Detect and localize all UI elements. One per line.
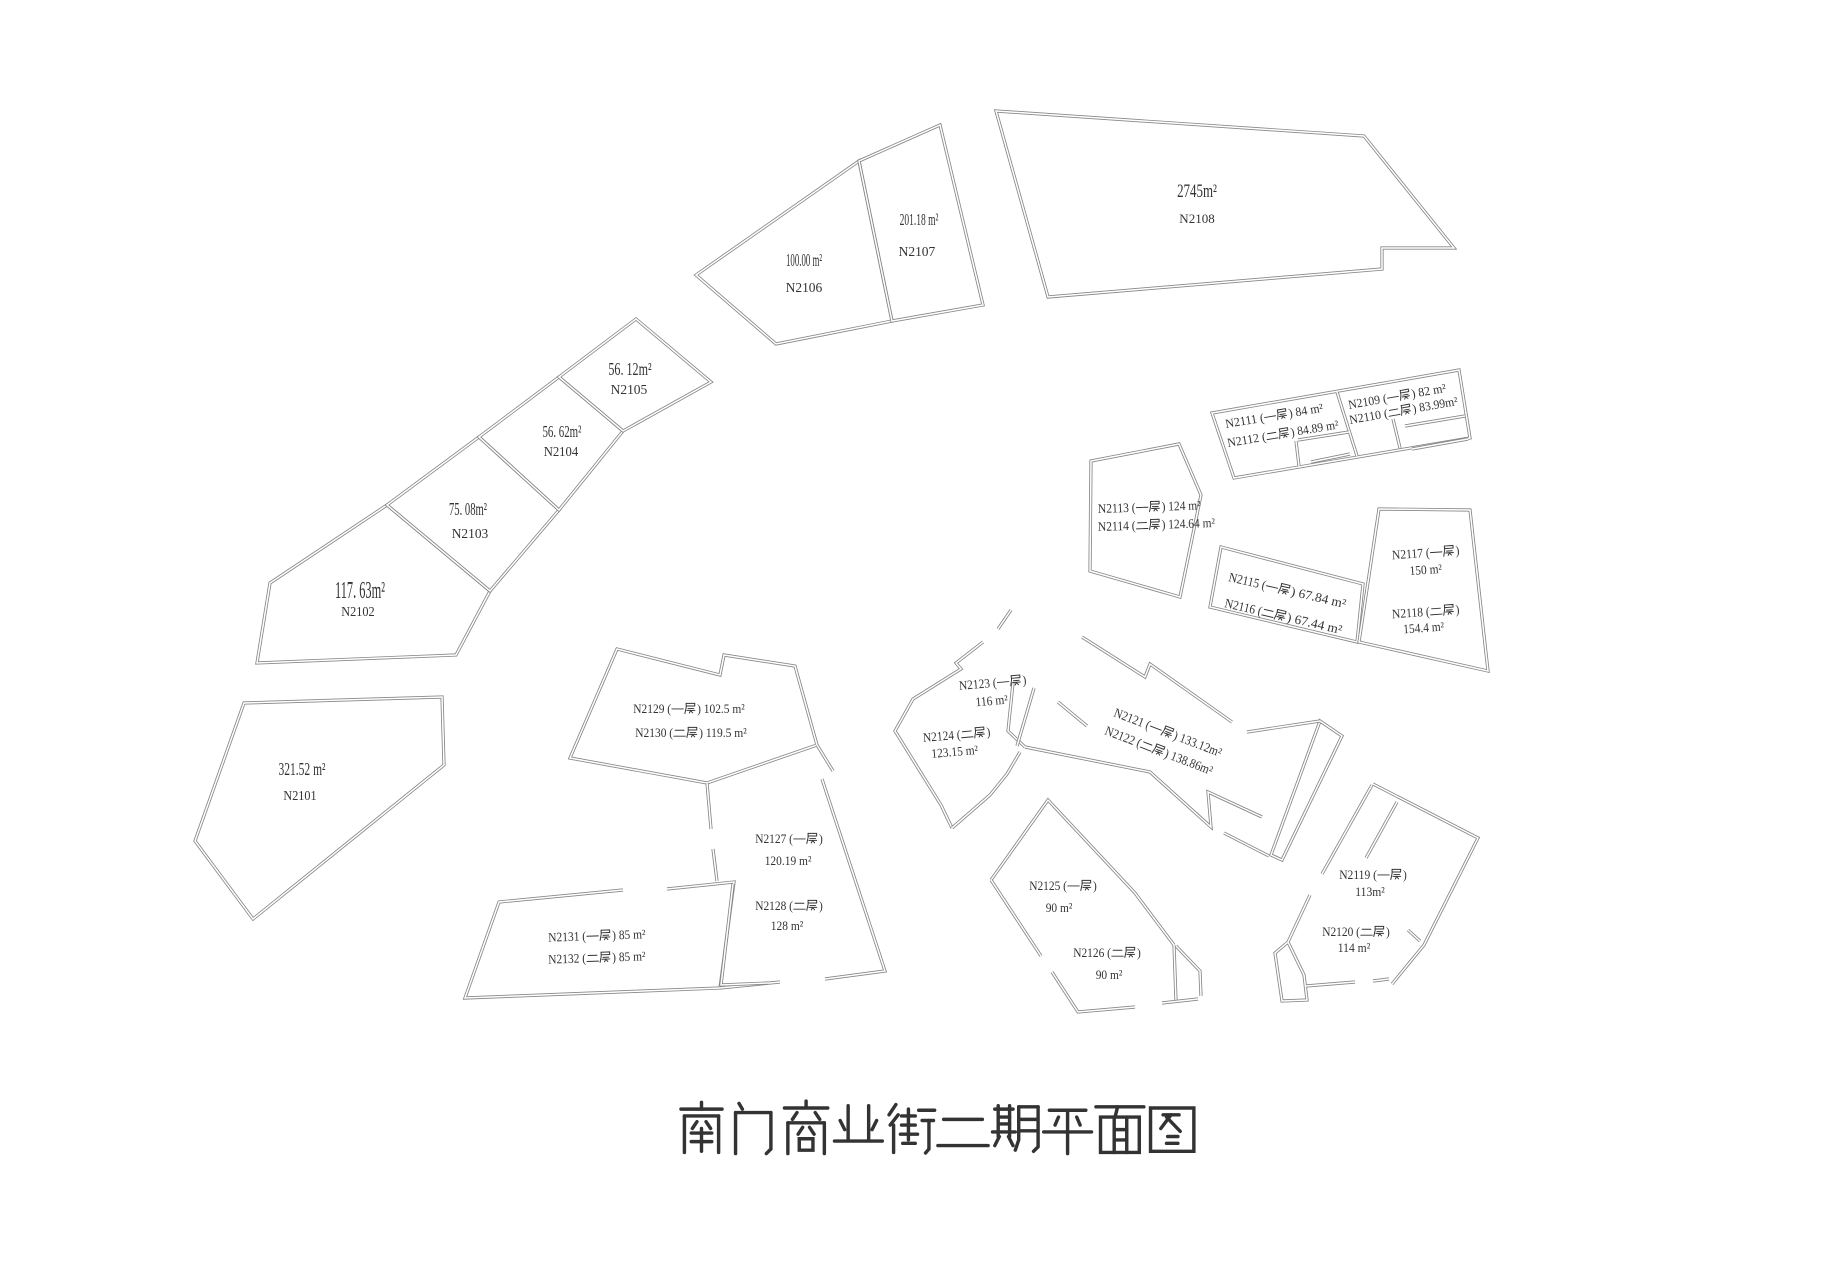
svg-text:56. 62m²: 56. 62m² — [543, 422, 582, 441]
svg-text:N2127 (: N2127 ( — [755, 831, 793, 846]
svg-text:120.19 m²: 120.19 m² — [765, 853, 812, 868]
svg-text:N2118 (: N2118 ( — [1391, 604, 1430, 622]
svg-text:) 102.5 m²: ) 102.5 m² — [697, 701, 745, 716]
svg-text:N2125 (: N2125 ( — [1029, 878, 1067, 893]
svg-text:N2129 (: N2129 ( — [633, 701, 671, 716]
svg-text:N2114 (: N2114 ( — [1098, 518, 1136, 534]
svg-text:90 m²: 90 m² — [1046, 900, 1073, 915]
svg-text:N2103: N2103 — [452, 527, 489, 542]
svg-text:N2108: N2108 — [1179, 211, 1214, 226]
svg-text:N2126 (: N2126 ( — [1073, 945, 1111, 960]
svg-text:90 m²: 90 m² — [1096, 967, 1123, 982]
svg-text:N2101: N2101 — [283, 789, 316, 804]
svg-text:N2107: N2107 — [899, 244, 936, 259]
svg-text:113m²: 113m² — [1355, 884, 1385, 899]
svg-text:56. 12m²: 56. 12m² — [608, 359, 651, 379]
svg-text:): ) — [1137, 945, 1141, 960]
svg-text:N2102: N2102 — [341, 605, 375, 620]
svg-text:) 85 m²: ) 85 m² — [612, 926, 646, 942]
svg-text:): ) — [819, 831, 823, 846]
svg-text:N2106: N2106 — [786, 280, 823, 295]
svg-text:N2128 (: N2128 ( — [755, 898, 793, 913]
svg-text:100.00 m²: 100.00 m² — [786, 250, 822, 270]
svg-text:114 m²: 114 m² — [1338, 940, 1370, 955]
svg-text:): ) — [1093, 878, 1097, 893]
svg-text:128 m²: 128 m² — [771, 918, 803, 933]
svg-text:116 m²: 116 m² — [975, 692, 1009, 710]
svg-text:): ) — [1386, 924, 1390, 939]
svg-text:) 85 m²: ) 85 m² — [612, 948, 646, 964]
svg-text:N2104: N2104 — [544, 444, 579, 459]
svg-text:N2117 (: N2117 ( — [1391, 545, 1430, 563]
svg-text:N2132 (: N2132 ( — [548, 950, 586, 966]
svg-text:): ) — [819, 898, 823, 913]
svg-text:75. 08m²: 75. 08m² — [449, 499, 487, 519]
svg-text:154.4 m²: 154.4 m² — [1403, 619, 1445, 637]
svg-text:N2120 (: N2120 ( — [1322, 924, 1360, 939]
svg-text:) 124.64 m²: ) 124.64 m² — [1161, 515, 1215, 532]
svg-text:): ) — [1403, 867, 1407, 882]
svg-text:201.18 m²: 201.18 m² — [900, 210, 939, 229]
svg-text:2745m²: 2745m² — [1177, 181, 1217, 202]
svg-text:N2119 (: N2119 ( — [1339, 867, 1377, 882]
svg-text:) 119.5 m²: ) 119.5 m² — [699, 725, 747, 740]
svg-text:117. 63m²: 117. 63m² — [335, 578, 385, 604]
svg-text:N2130 (: N2130 ( — [635, 725, 673, 740]
svg-text:N2131 (: N2131 ( — [548, 928, 586, 944]
svg-text:N2105: N2105 — [611, 382, 648, 397]
svg-text:150 m²: 150 m² — [1409, 561, 1442, 578]
svg-text:N2113 (: N2113 ( — [1098, 500, 1136, 516]
svg-text:321.52 m²: 321.52 m² — [279, 759, 326, 779]
svg-text:) 124 m²: ) 124 m² — [1161, 497, 1201, 513]
